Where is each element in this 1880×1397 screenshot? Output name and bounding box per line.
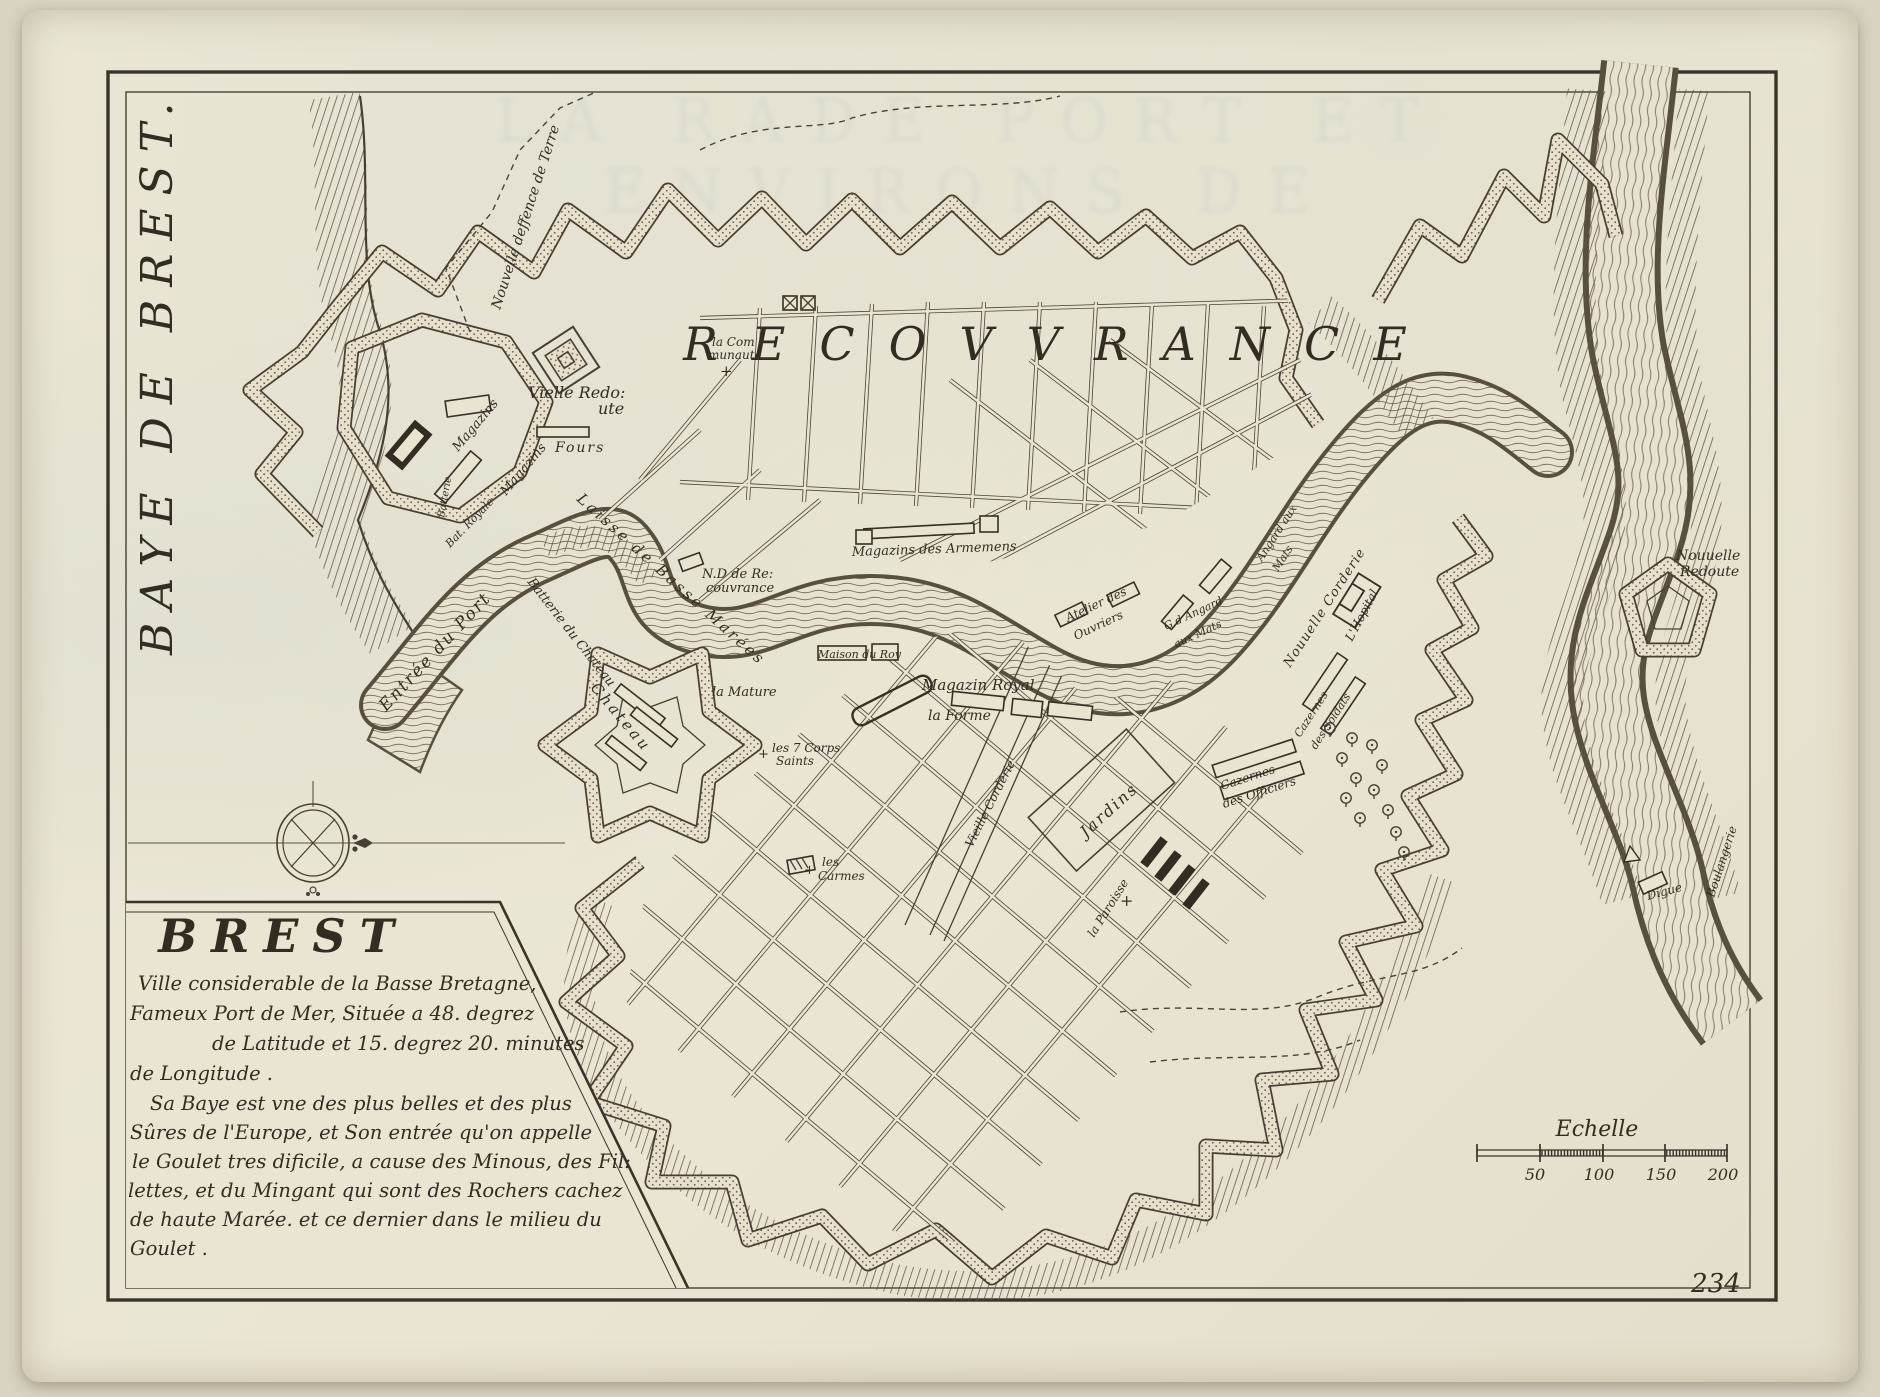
- page-number: 234: [1690, 1269, 1741, 1299]
- label-corps-saints-2: Saints: [776, 754, 814, 768]
- east-river: [1562, 64, 1732, 1022]
- cartouche-line: Ville considerable de la Basse Bretagne,: [138, 972, 537, 995]
- scale-tick: 150: [1646, 1165, 1677, 1184]
- fours-building: [537, 427, 589, 437]
- church-cross-paroisse: +: [1120, 891, 1133, 910]
- label-magazin-royal: Magazin Royal: [921, 676, 1035, 694]
- cartouche-line: de Latitude et 15. degrez 20. minutes: [212, 1032, 585, 1055]
- scale-tick: 100: [1584, 1165, 1615, 1184]
- label-la-communaute: la Com: [712, 335, 755, 349]
- label-la-mature: la Mature: [712, 685, 777, 700]
- district-label-recouvrance: RECOVVRANCE: [682, 317, 1441, 371]
- bridge-marks: [783, 296, 815, 310]
- cartouche-line: Sûres de l'Europe, et Son entrée qu'on a…: [130, 1121, 592, 1144]
- scale-tick: 50: [1525, 1165, 1545, 1184]
- church-cross-communaute: +: [720, 362, 733, 380]
- cartouche-line: lettes, et du Mingant qui sont des Roche…: [128, 1179, 623, 1202]
- cartouche-line: Fameux Port de Mer, Située a 48. degrez: [129, 1002, 535, 1025]
- label-nouvelle-redoute: Nouuelle: [1675, 548, 1740, 564]
- cartouche-title: BREST: [156, 909, 408, 963]
- label-batterie-du-chateau: Batterie du Chateau: [523, 574, 618, 689]
- magazins-armemens-building: [864, 523, 974, 539]
- label-les-carmes: les: [822, 855, 839, 869]
- margin-title: BAYE DE BREST.: [132, 90, 183, 656]
- label-fours: Fours: [554, 440, 605, 456]
- label-nouvelle-redoute-2: Redoute: [1679, 564, 1739, 580]
- cartouche-line: Sa Baye est vne des plus belles et des p…: [150, 1092, 572, 1115]
- nd-recouvrance-chapel: [679, 553, 704, 572]
- label-les-carmes-2: Carmes: [818, 869, 865, 883]
- engraved-map: BREST Ville considerable de la Basse Bre…: [0, 0, 1880, 1397]
- compass-south-ornament: [306, 887, 320, 896]
- church-cross-carmes: +: [804, 863, 815, 878]
- label-corps-saints: les 7 Corps: [772, 741, 840, 755]
- cartouche-line: Goulet .: [130, 1237, 208, 1260]
- cartouche-line: de haute Marée. et ce dernier dans le mi…: [130, 1208, 602, 1231]
- scale-tick: 200: [1707, 1165, 1739, 1184]
- label-vieille-redoute-2: ute: [598, 399, 624, 418]
- scanned-map-page: LA RADE PORT ET ENVIRONS DE: [0, 0, 1880, 1397]
- label-la-forme: la Forme: [928, 708, 991, 724]
- scale-title: Echelle: [1555, 1117, 1639, 1142]
- label-la-communaute-2: munauté: [708, 348, 762, 362]
- cartouche-line: de Longitude .: [130, 1062, 273, 1085]
- top-dashed-line: [700, 96, 1060, 150]
- label-nouvelle-deffence: Nouvelle deffence de Terre: [488, 123, 563, 312]
- compass-rose: [128, 781, 565, 896]
- label-nd-recouvrance-2: couvrance: [706, 581, 774, 596]
- church-cross-corps-saints: +: [758, 747, 769, 762]
- label-magazins-armemens: Magazins des Armemens: [851, 539, 1018, 560]
- tree-rows: [1325, 723, 1409, 861]
- label-nd-recouvrance: N.D de Re:: [701, 567, 773, 582]
- scale-bar: Echelle 50 100 150 200: [1477, 1117, 1738, 1184]
- label-maison-du-roy: Maison du Roy: [817, 648, 902, 661]
- compass-east-fleur: [352, 834, 373, 851]
- cartouche-line: le Goulet tres dificile, a cause des Min…: [132, 1150, 631, 1173]
